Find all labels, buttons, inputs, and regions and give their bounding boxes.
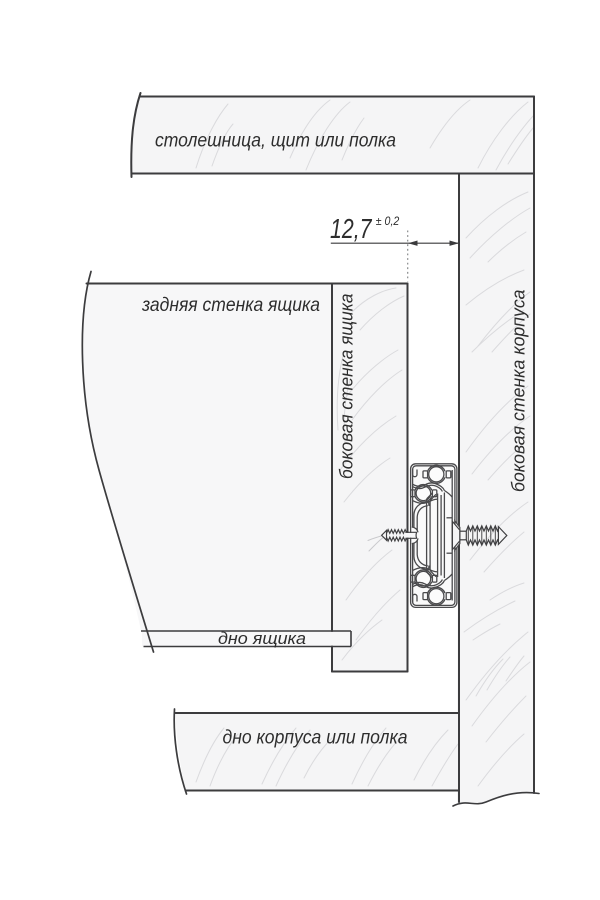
- svg-text:дно корпуса или полка: дно корпуса или полка: [223, 727, 408, 749]
- svg-text:задняя стенка ящика: задняя стенка ящика: [141, 294, 320, 316]
- svg-text:дно ящика: дно ящика: [218, 630, 306, 648]
- svg-text:боковая стенка корпуса: боковая стенка корпуса: [508, 290, 529, 493]
- svg-text:12,7: 12,7: [330, 213, 373, 244]
- svg-text:столешница, щит или полка: столешница, щит или полка: [155, 130, 396, 152]
- svg-text:боковая стенка ящика: боковая стенка ящика: [336, 294, 357, 480]
- svg-text:± 0,2: ± 0,2: [376, 216, 400, 228]
